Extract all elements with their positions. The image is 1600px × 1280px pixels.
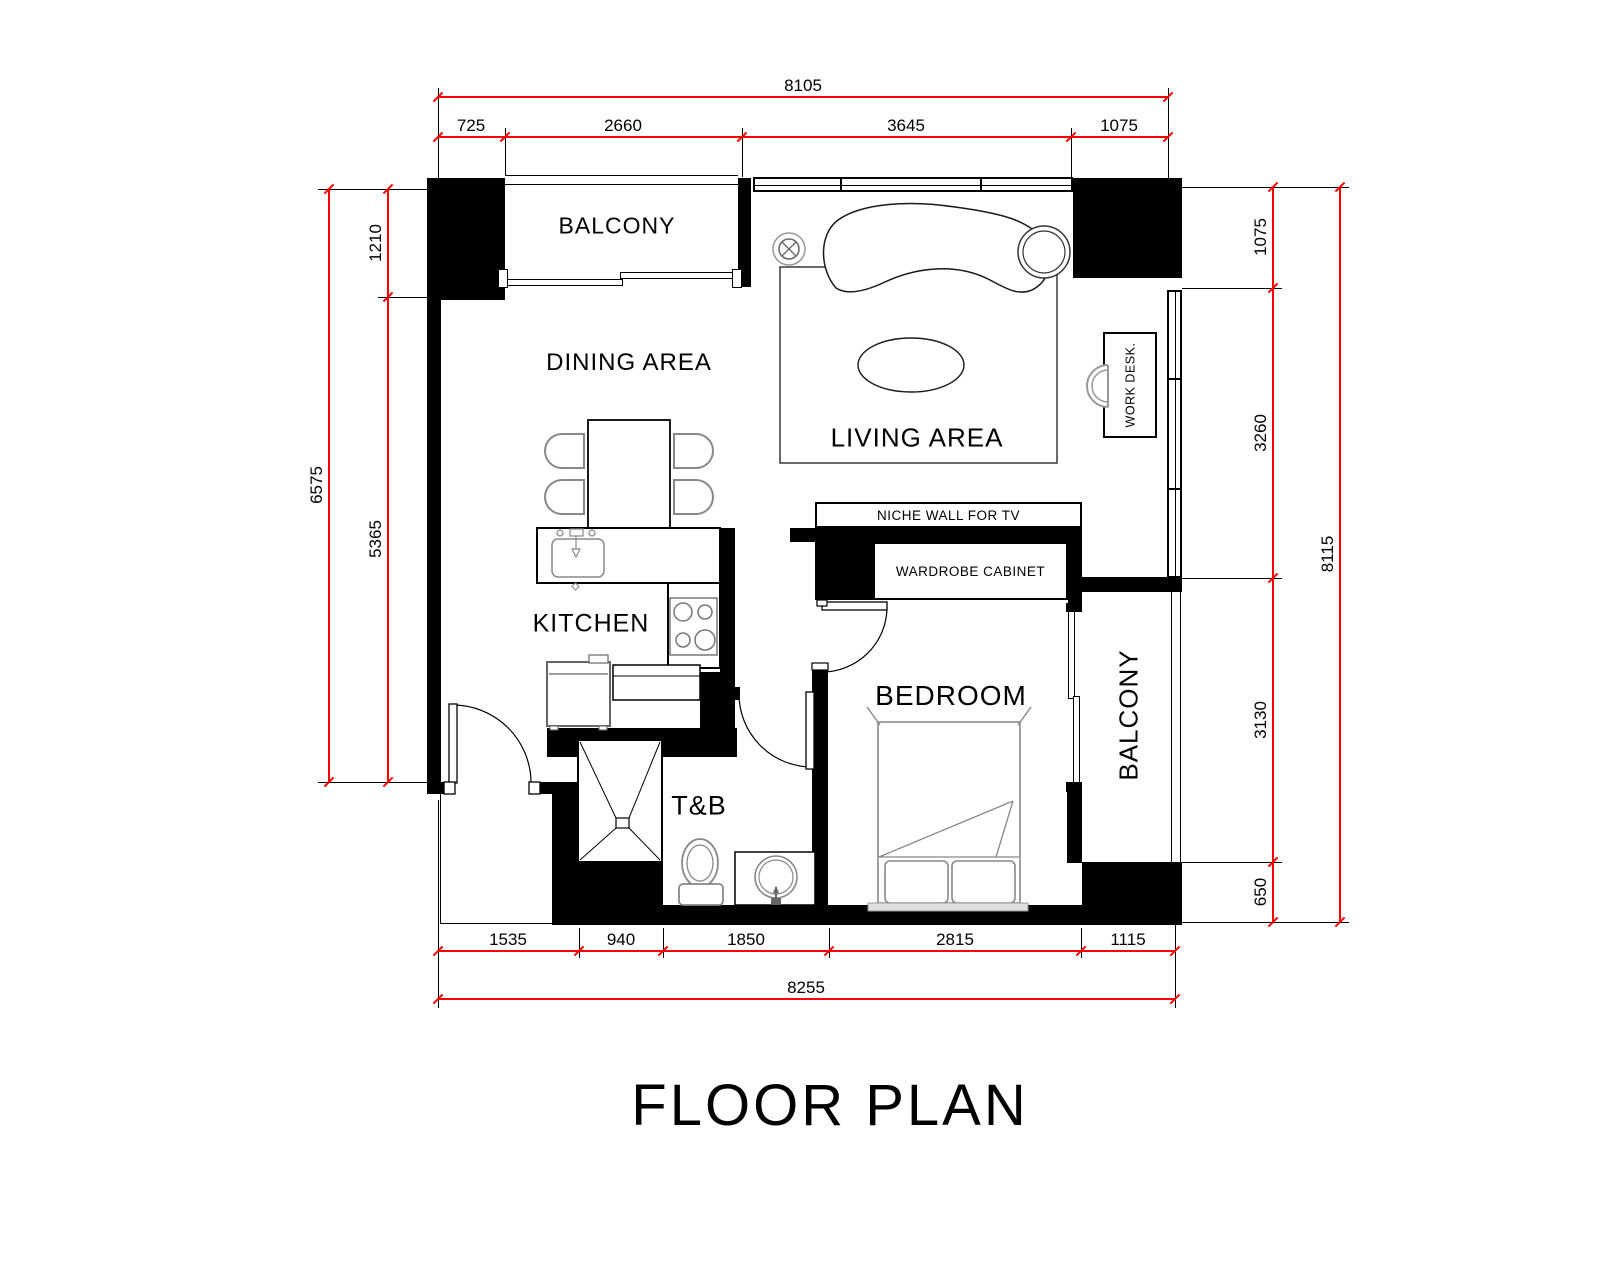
refrigerator [547,655,610,730]
wall-shower-left [552,794,578,864]
dim-bottom-seg: 1850 [727,930,765,950]
dim-top-seg: 1075 [1100,116,1138,136]
wardrobe-cabinet-label: WARDROBE CABINET [896,564,1045,579]
room-label-balcony-right: BALCONY [1114,649,1145,780]
wall-kitchen-right-lower [700,672,735,740]
room-label-bedroom: BEDROOM [875,680,1027,712]
dim-right-overall: 8115 [1318,536,1338,573]
wall-bottom-left [552,862,663,925]
dim-right-seg: 3130 [1251,701,1271,739]
wall-left [427,300,441,783]
window-mullion [1169,378,1180,380]
ext-line [318,189,427,190]
balcony-top-sliding-door-panel [507,279,623,286]
ext-line [1182,578,1282,579]
wall-column-top-right [1073,178,1182,278]
window-mullion [840,179,842,190]
wall-wardrobe-corner [815,542,873,600]
dim-line-right-overall [1339,187,1341,922]
wall-entry-left [427,782,447,794]
window-glass-line [755,185,1071,186]
page-title: FLOOR PLAN [631,1072,1028,1139]
dim-bottom-overall: 8255 [787,978,825,998]
wall-entry-right [540,782,578,794]
ext-line [829,928,830,958]
window-mullion [980,179,982,190]
wall-niche-bar [790,528,1082,542]
ext-line [1182,288,1282,289]
side-table [1018,226,1070,278]
entry-door [444,704,540,794]
kitchen-stove-counter [668,583,720,668]
room-label-tb: T&B [671,791,727,822]
work-desk-label: WORK DESK. [1123,343,1137,428]
dim-top-seg: 3645 [887,116,925,136]
wall-bottom-middle [663,905,1082,925]
balcony-top-sliding-door-panel [620,272,737,279]
ext-line [663,928,664,958]
corridor-line [440,794,441,923]
floor-plan-drawing: 8105 725 2660 3645 1075 6575 1210 5365 1… [0,0,1600,1280]
work-desk-box: WORK DESK. [1103,332,1157,438]
dim-top-seg: 2660 [604,116,642,136]
sliding-door-post [498,269,508,288]
room-label-dining: DINING AREA [546,349,712,377]
dim-left-seg: 1210 [366,224,386,262]
sliding-door-post [732,269,742,288]
floor-lamp-icon [773,233,805,265]
corridor-line [440,923,552,924]
tb-door-stop [733,687,740,700]
ext-line [1182,862,1282,863]
sliding-door-post [1066,782,1082,792]
dim-left-overall: 6575 [307,466,327,504]
wall-balcony2-left-lower [1067,783,1082,863]
lavatory-sink [735,852,815,905]
shower [578,740,662,862]
sofa [824,203,1050,292]
kitchen-sink-counter [537,528,720,590]
dim-line-top-segments [438,136,1168,138]
dim-line-top-overall [438,96,1168,98]
room-label-balcony-top: BALCONY [559,213,676,240]
dim-bottom-seg: 2815 [936,930,974,950]
dim-top-overall: 8105 [784,76,822,96]
ext-line [438,800,439,1008]
kitchen-base-cabinet [613,665,700,700]
window-glass-line [1175,292,1176,576]
toilet [679,839,723,905]
wall-bedroom-left [812,667,828,907]
living-top-window [753,177,1073,192]
dim-top-seg: 725 [457,116,485,136]
ext-line [1081,928,1082,958]
dining-chair [545,434,713,514]
ext-line [1182,187,1349,188]
bed [867,707,1031,911]
wall-column-top-left [427,178,505,300]
dim-line-left-segments [387,189,389,782]
wardrobe-cabinet-box: WARDROBE CABINET [873,542,1068,600]
dim-right-seg: 3260 [1251,414,1271,452]
sliding-door-post [1066,603,1082,612]
coffee-table [858,338,964,392]
niche-wall-label: NICHE WALL FOR TV [877,508,1020,523]
dining-table [588,420,670,530]
window-mullion [1169,488,1180,490]
dim-bottom-seg: 940 [607,930,635,950]
room-label-living: LIVING AREA [831,423,1004,454]
dim-left-seg: 5365 [366,520,386,558]
dim-bottom-seg: 1115 [1110,930,1145,950]
wall-balcony-bottom-right [1082,862,1182,925]
ext-line [579,928,580,958]
niche-wall-box: NICHE WALL FOR TV [815,502,1082,528]
wall-bedroom-right-upper [1068,542,1082,608]
dim-right-seg: 650 [1251,878,1271,906]
bedroom-balcony-sliding-door-panel [1073,696,1080,785]
living-right-window [1167,290,1182,578]
ext-line [318,782,427,783]
balcony-right-railing [1171,592,1181,862]
ext-line [1182,922,1349,923]
room-label-kitchen: KITCHEN [533,610,650,639]
bedroom-balcony-sliding-door-panel [1068,611,1075,699]
dim-line-bottom-overall [438,998,1175,1000]
dim-right-seg: 1075 [1251,218,1271,256]
dim-bottom-seg: 1535 [489,930,527,950]
dim-line-left-overall [328,189,330,782]
dim-line-bottom-segments [438,950,1175,952]
bedroom-door [817,600,887,672]
dim-line-right-segments [1272,187,1274,922]
wall-kitchen-right [720,528,735,674]
wall-above-right-balcony [1082,577,1182,592]
balcony-top-railing [505,175,738,185]
